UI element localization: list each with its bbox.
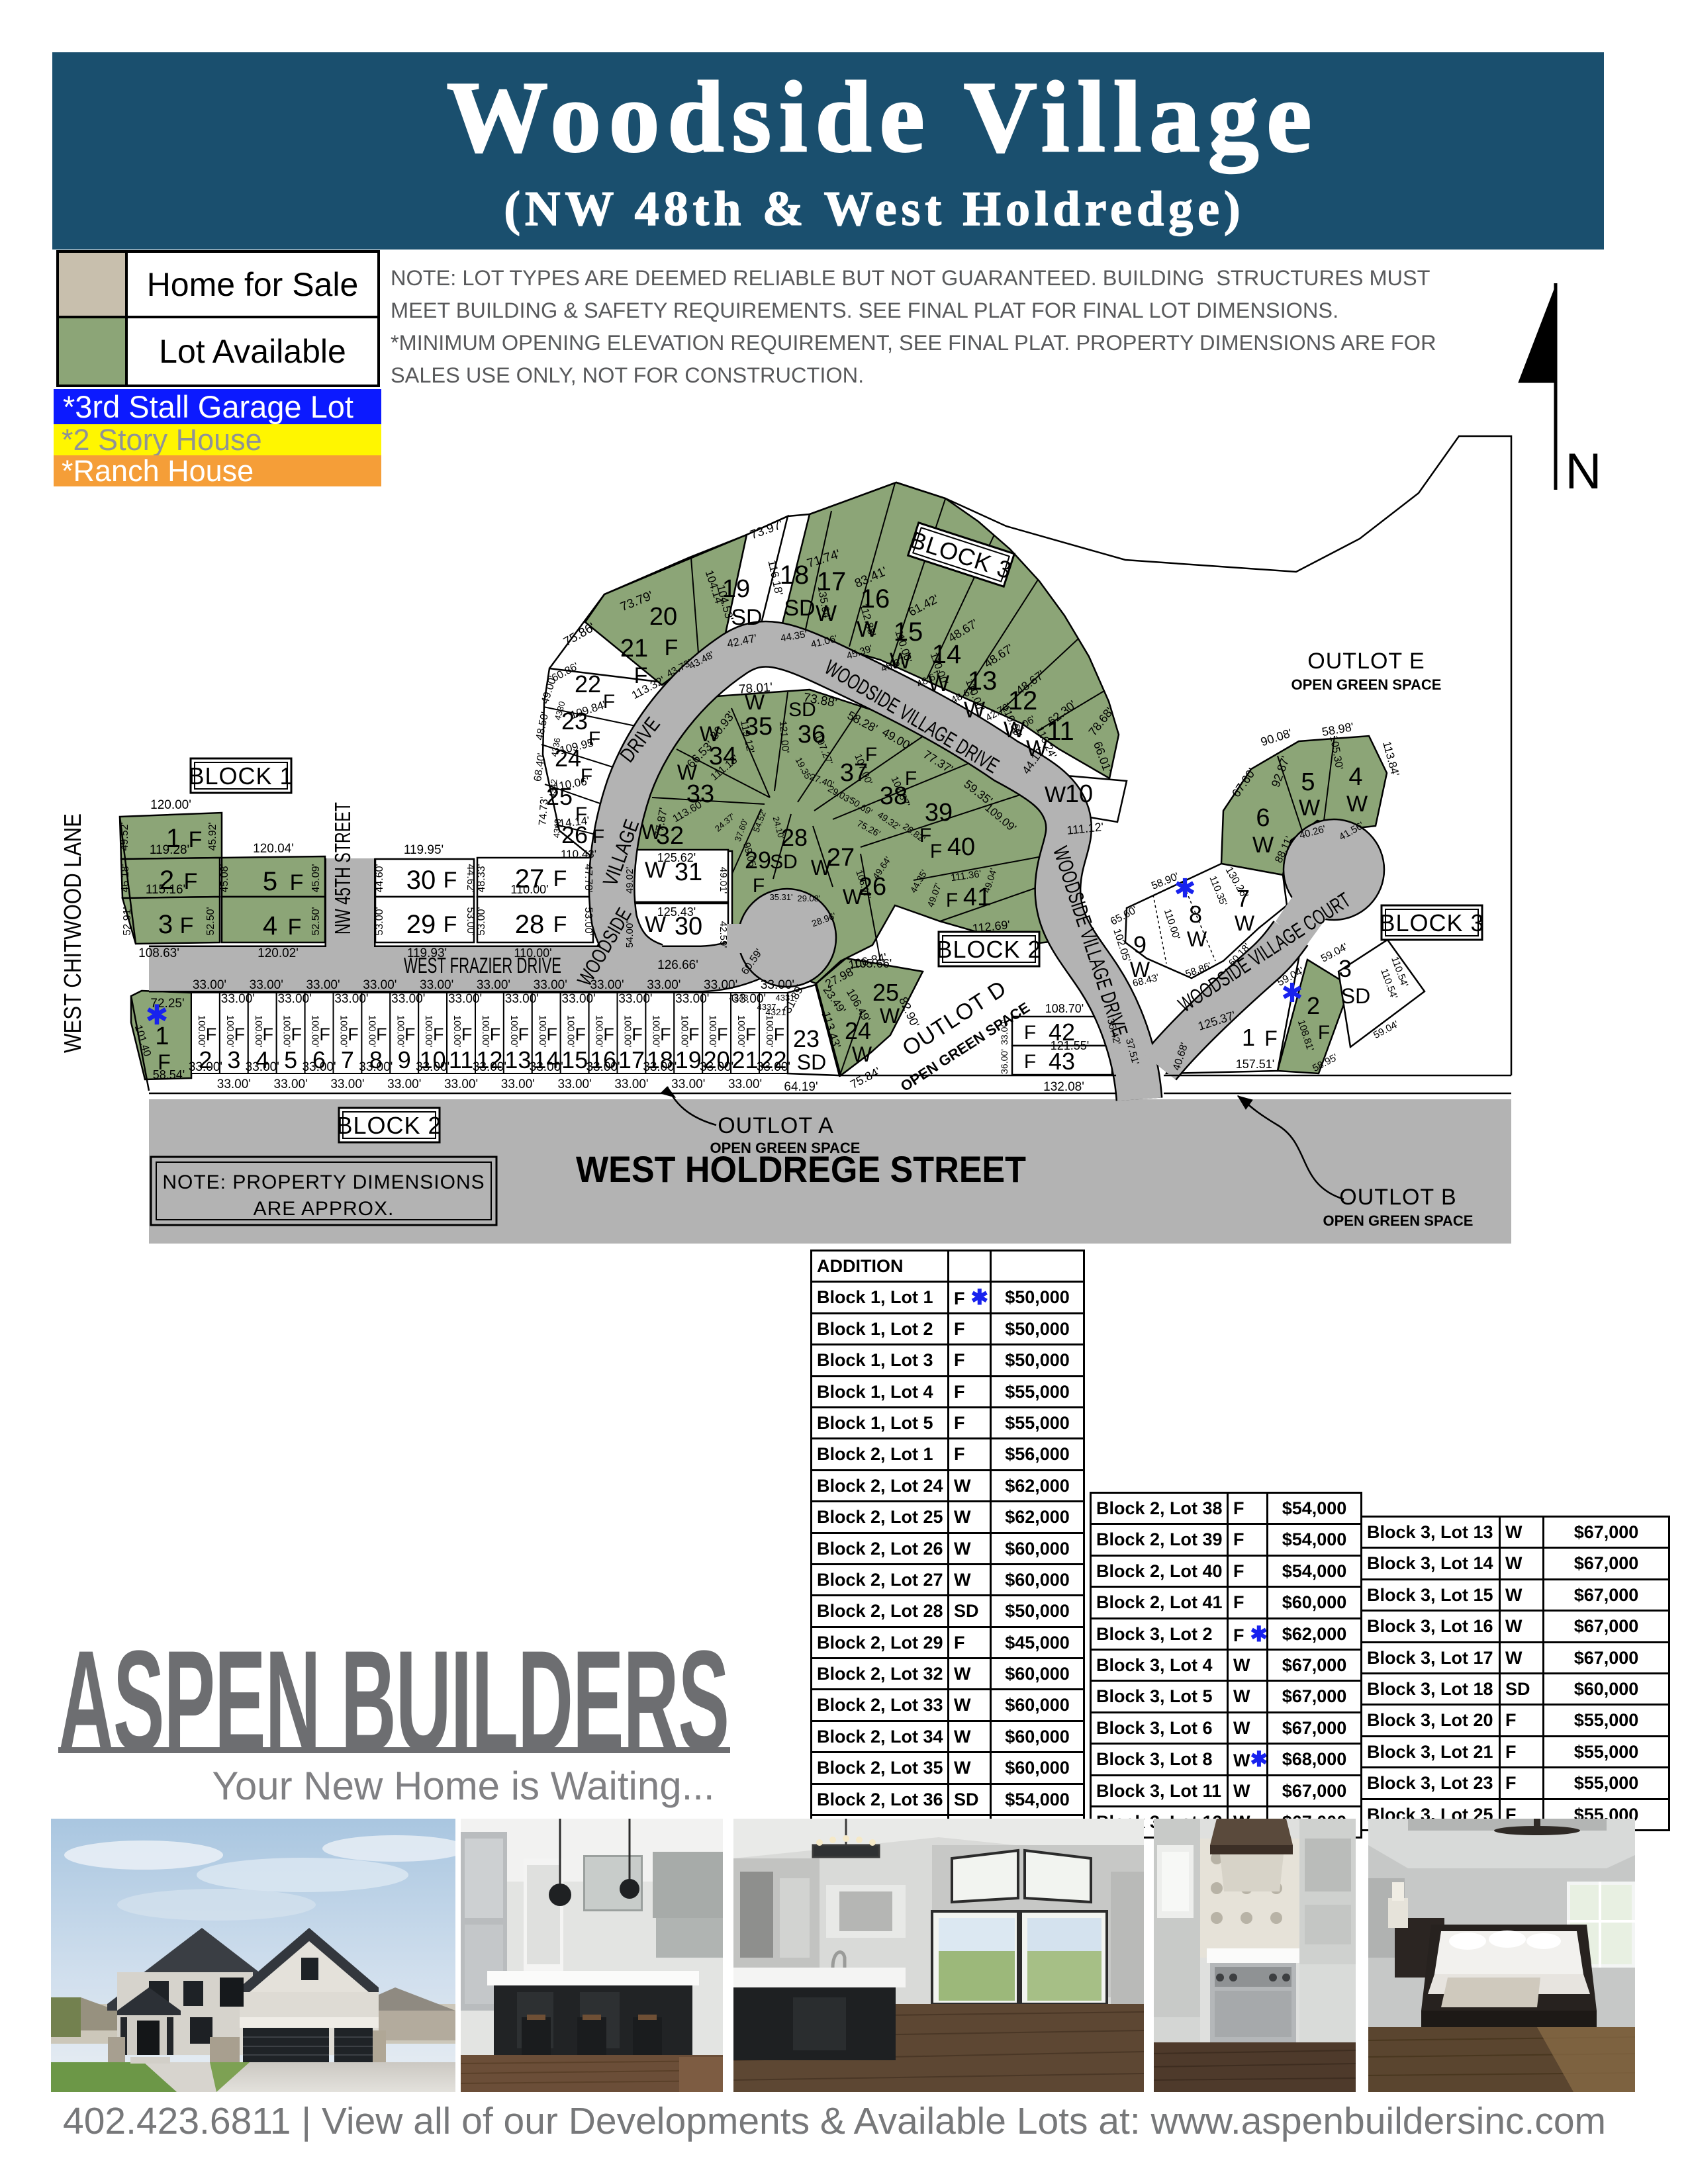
- svg-text:21: 21: [620, 635, 648, 662]
- svg-text:F: F: [1024, 1051, 1036, 1073]
- svg-text:44.60': 44.60': [374, 864, 385, 892]
- svg-text:45.92': 45.92': [207, 822, 218, 850]
- svg-text:33.00': 33.00': [420, 978, 453, 992]
- svg-text:33.00': 33.00': [330, 1077, 364, 1091]
- svg-text:29.08': 29.08': [797, 893, 820, 903]
- svg-text:33.00': 33.00': [363, 978, 397, 992]
- svg-text:1: 1: [1242, 1024, 1255, 1051]
- svg-text:F: F: [444, 868, 457, 893]
- svg-text:4348: 4348: [551, 819, 563, 839]
- svg-text:NOTE: PROPERTY DIMENSIONS: NOTE: PROPERTY DIMENSIONS: [162, 1171, 485, 1193]
- svg-text:33.00': 33.00': [647, 978, 680, 992]
- svg-text:33.00': 33.00': [217, 1077, 251, 1091]
- svg-text:33.00': 33.00': [387, 1077, 421, 1091]
- svg-text:100.00': 100.00': [735, 1015, 747, 1048]
- svg-text:3: 3: [158, 910, 173, 939]
- svg-text:40: 40: [947, 833, 975, 861]
- svg-text:100.00': 100.00': [622, 1015, 633, 1048]
- svg-text:110.00': 110.00': [510, 883, 548, 896]
- svg-text:35.31': 35.31': [769, 892, 792, 902]
- svg-text:3: 3: [1338, 955, 1352, 982]
- svg-text:OPEN GREEN SPACE: OPEN GREEN SPACE: [710, 1140, 861, 1156]
- svg-text:SD: SD: [770, 851, 798, 873]
- svg-text:58.54': 58.54': [153, 1068, 185, 1081]
- svg-text:28: 28: [515, 910, 545, 939]
- svg-text:105.66': 105.66': [853, 957, 892, 970]
- svg-text:5: 5: [284, 1046, 297, 1073]
- svg-text:44.62': 44.62': [465, 864, 476, 892]
- svg-text:BLOCK 2: BLOCK 2: [336, 1112, 442, 1139]
- svg-text:23: 23: [793, 1025, 820, 1052]
- svg-text:100.00': 100.00': [764, 1015, 775, 1048]
- svg-text:119.95': 119.95': [404, 843, 444, 857]
- svg-text:21: 21: [732, 1046, 759, 1073]
- svg-text:F: F: [1264, 1026, 1278, 1050]
- svg-text:F: F: [290, 870, 304, 895]
- svg-text:53.00': 53.00': [476, 907, 487, 935]
- svg-text:W: W: [1346, 792, 1368, 817]
- svg-text:33.00': 33.00': [391, 992, 425, 1006]
- svg-text:45.09': 45.09': [310, 864, 322, 892]
- svg-text:33.00': 33.00': [246, 1060, 279, 1074]
- svg-text:132.08': 132.08': [1043, 1080, 1084, 1094]
- svg-text:25: 25: [872, 979, 899, 1006]
- svg-text:33.00': 33.00': [334, 992, 368, 1006]
- svg-text:100.00': 100.00': [310, 1015, 321, 1048]
- svg-text:33.00': 33.00': [558, 1077, 592, 1091]
- svg-text:W: W: [1235, 911, 1255, 935]
- svg-text:100.00': 100.00': [508, 1015, 520, 1048]
- svg-text:33.00': 33.00': [704, 978, 737, 992]
- svg-text:W: W: [1299, 796, 1320, 821]
- svg-text:53.00': 53.00': [465, 907, 476, 935]
- svg-text:F: F: [1318, 1022, 1330, 1044]
- svg-text:75.84': 75.84': [848, 1064, 882, 1091]
- svg-text:52.50': 52.50': [205, 907, 216, 935]
- svg-text:120.04': 120.04': [253, 842, 294, 856]
- svg-text:ARE APPROX.: ARE APPROX.: [254, 1198, 395, 1220]
- svg-text:33.00': 33.00': [501, 1077, 535, 1091]
- svg-text:100.00': 100.00': [196, 1015, 207, 1048]
- svg-text:OPEN GREEN SPACE: OPEN GREEN SPACE: [1323, 1212, 1474, 1229]
- svg-text:2: 2: [1307, 992, 1320, 1019]
- svg-text:33.00': 33.00': [761, 978, 794, 992]
- svg-text:53.00': 53.00': [374, 907, 385, 935]
- svg-text:108.63': 108.63': [138, 946, 179, 960]
- svg-text:18: 18: [780, 561, 810, 590]
- svg-text:3: 3: [227, 1046, 240, 1073]
- svg-text:126.66': 126.66': [657, 958, 698, 972]
- svg-text:33.00': 33.00': [643, 1060, 677, 1074]
- svg-text:33.00': 33.00': [448, 992, 482, 1006]
- svg-text:33.00': 33.00': [473, 1060, 506, 1074]
- svg-text:68.40': 68.40': [532, 752, 547, 782]
- svg-text:F: F: [553, 866, 567, 891]
- svg-text:47.78': 47.78': [583, 864, 594, 892]
- svg-text:13: 13: [504, 1046, 531, 1073]
- svg-text:33.00': 33.00': [359, 1060, 393, 1074]
- svg-text:F: F: [184, 869, 198, 894]
- svg-text:100.00': 100.00': [679, 1015, 690, 1048]
- svg-text:58.98': 58.98': [1321, 720, 1354, 739]
- svg-text:115.16': 115.16': [146, 883, 185, 897]
- svg-text:5: 5: [1301, 768, 1315, 796]
- svg-text:F: F: [753, 875, 765, 897]
- svg-text:125.43': 125.43': [657, 905, 696, 919]
- svg-text:8: 8: [1189, 901, 1202, 928]
- svg-text:33.00': 33.00': [757, 1060, 790, 1074]
- svg-text:100.00': 100.00': [366, 1015, 377, 1048]
- svg-text:4331: 4331: [776, 993, 795, 1003]
- svg-text:33.00': 33.00': [700, 1060, 733, 1074]
- svg-text:OUTLOT E: OUTLOT E: [1307, 649, 1425, 674]
- svg-text:33.00': 33.00': [728, 1077, 762, 1091]
- svg-text:F: F: [553, 912, 567, 937]
- svg-text:33.00': 33.00': [562, 992, 596, 1006]
- svg-text:78.01': 78.01': [738, 680, 773, 697]
- svg-text:100.00': 100.00': [224, 1015, 236, 1048]
- svg-text:45.08': 45.08': [219, 864, 230, 892]
- svg-text:OPEN GREEN SPACE: OPEN GREEN SPACE: [1291, 676, 1442, 693]
- svg-text:39: 39: [925, 799, 953, 827]
- svg-text:33.00': 33.00': [505, 992, 539, 1006]
- svg-text:33.00': 33.00': [278, 992, 312, 1006]
- svg-text:33.00': 33.00': [416, 1060, 449, 1074]
- svg-text:74.73': 74.73': [538, 797, 551, 826]
- svg-text:F: F: [905, 768, 917, 790]
- svg-text:W: W: [1187, 927, 1207, 951]
- svg-text:53.00': 53.00': [583, 907, 594, 935]
- svg-text:F: F: [665, 635, 679, 660]
- svg-text:SD: SD: [1341, 984, 1370, 1008]
- svg-text:9: 9: [398, 1046, 411, 1073]
- svg-text:100.00': 100.00': [338, 1015, 350, 1048]
- svg-text:F: F: [946, 889, 958, 911]
- svg-text:33.00': 33.00': [675, 992, 709, 1006]
- svg-text:33.00': 33.00': [306, 978, 340, 992]
- svg-text:33.00': 33.00': [477, 978, 510, 992]
- svg-text:17: 17: [618, 1046, 645, 1073]
- svg-text:6: 6: [1256, 804, 1270, 832]
- svg-text:33.00': 33.00': [189, 1060, 222, 1074]
- svg-text:OUTLOT B: OUTLOT B: [1339, 1185, 1456, 1210]
- svg-text:5: 5: [263, 867, 277, 896]
- svg-text:F: F: [189, 827, 203, 852]
- svg-text:100.00': 100.00': [253, 1015, 264, 1048]
- svg-text:100.00': 100.00': [451, 1015, 463, 1048]
- svg-text:WEST FRAZIER DRIVE: WEST FRAZIER DRIVE: [404, 953, 561, 978]
- svg-text:9: 9: [1133, 931, 1147, 958]
- svg-text:33.00': 33.00': [444, 1077, 478, 1091]
- svg-text:NW 45TH STREET: NW 45TH STREET: [330, 802, 355, 934]
- svg-text:BLOCK 2: BLOCK 2: [936, 936, 1041, 963]
- svg-text:F: F: [592, 826, 604, 848]
- svg-text:W: W: [880, 1004, 900, 1028]
- svg-text:100.00': 100.00': [707, 1015, 718, 1048]
- svg-text:33.00': 33.00': [534, 978, 567, 992]
- svg-text:30: 30: [406, 866, 436, 895]
- svg-text:33.00': 33.00': [618, 992, 652, 1006]
- svg-text:15: 15: [561, 1046, 588, 1073]
- svg-text:121.55': 121.55': [1051, 1039, 1090, 1052]
- svg-text:42.59': 42.59': [718, 921, 729, 948]
- svg-text:36.00': 36.00': [999, 1049, 1009, 1074]
- svg-text:108.70': 108.70': [1045, 1002, 1084, 1015]
- svg-text:7: 7: [341, 1046, 354, 1073]
- svg-text:120.00': 120.00': [150, 798, 191, 812]
- svg-text:W: W: [811, 856, 831, 880]
- svg-text:48.33': 48.33': [476, 864, 487, 892]
- svg-text:OUTLOT A: OUTLOT A: [718, 1113, 834, 1138]
- svg-text:100.00': 100.00': [480, 1015, 491, 1048]
- svg-text:100.00': 100.00': [594, 1015, 605, 1048]
- svg-text:33.00': 33.00': [221, 992, 255, 1006]
- svg-text:33.00': 33.00': [614, 1077, 648, 1091]
- svg-text:4: 4: [1348, 763, 1362, 791]
- svg-text:125.62': 125.62': [657, 851, 696, 864]
- svg-text:33.00': 33.00': [586, 1060, 620, 1074]
- svg-text:100.00': 100.00': [650, 1015, 661, 1048]
- svg-text:W: W: [852, 1042, 872, 1066]
- svg-text:WEST CHITWOOD LANE: WEST CHITWOOD LANE: [59, 813, 86, 1053]
- svg-text:F: F: [180, 913, 194, 938]
- svg-text:29: 29: [406, 910, 436, 939]
- svg-text:11: 11: [449, 1046, 473, 1073]
- svg-text:BLOCK 3: BLOCK 3: [1379, 909, 1484, 936]
- svg-text:100.00': 100.00': [281, 1015, 293, 1048]
- svg-text:33.00': 33.00': [193, 978, 226, 992]
- svg-text:64.19': 64.19': [784, 1080, 818, 1094]
- svg-text:33.00': 33.00': [250, 978, 283, 992]
- svg-text:33.00': 33.00': [274, 1077, 308, 1091]
- svg-text:F: F: [930, 841, 942, 862]
- svg-text:27: 27: [827, 844, 855, 872]
- svg-text:W: W: [1045, 782, 1066, 807]
- svg-text:33.00': 33.00': [671, 1077, 705, 1091]
- svg-text:10: 10: [1065, 780, 1093, 808]
- svg-text:49.01': 49.01': [718, 867, 729, 894]
- svg-text:119.28': 119.28': [150, 843, 189, 857]
- svg-text:100.00': 100.00': [565, 1015, 577, 1048]
- svg-text:33.00': 33.00': [530, 1060, 563, 1074]
- svg-text:20: 20: [649, 603, 677, 631]
- svg-text:W: W: [1252, 833, 1274, 858]
- svg-text:100.00': 100.00': [423, 1015, 434, 1048]
- svg-text:SD: SD: [784, 596, 815, 621]
- svg-text:F: F: [288, 915, 302, 940]
- svg-text:22: 22: [575, 670, 601, 698]
- svg-text:157.51': 157.51': [1236, 1058, 1275, 1071]
- svg-text:33.00': 33.00': [302, 1060, 336, 1074]
- svg-text:BLOCK 1: BLOCK 1: [188, 762, 293, 790]
- svg-text:120.02': 120.02': [258, 946, 299, 960]
- svg-text:SD: SD: [797, 1050, 826, 1074]
- svg-text:4343: 4343: [729, 993, 749, 1003]
- svg-text:F: F: [1024, 1022, 1036, 1044]
- svg-text:90.08': 90.08': [1259, 726, 1293, 749]
- svg-text:N: N: [1566, 443, 1602, 500]
- svg-text:100.00': 100.00': [395, 1015, 406, 1048]
- svg-text:4: 4: [263, 911, 277, 940]
- svg-text:52.50': 52.50': [310, 907, 322, 935]
- svg-text:4337: 4337: [757, 1002, 776, 1012]
- svg-text:4342: 4342: [547, 778, 559, 798]
- svg-text:110.43': 110.43': [561, 848, 596, 860]
- svg-text:100.00': 100.00': [537, 1015, 548, 1048]
- svg-text:19: 19: [675, 1046, 702, 1073]
- svg-text:F: F: [444, 912, 457, 937]
- svg-text:✱: ✱: [145, 999, 168, 1030]
